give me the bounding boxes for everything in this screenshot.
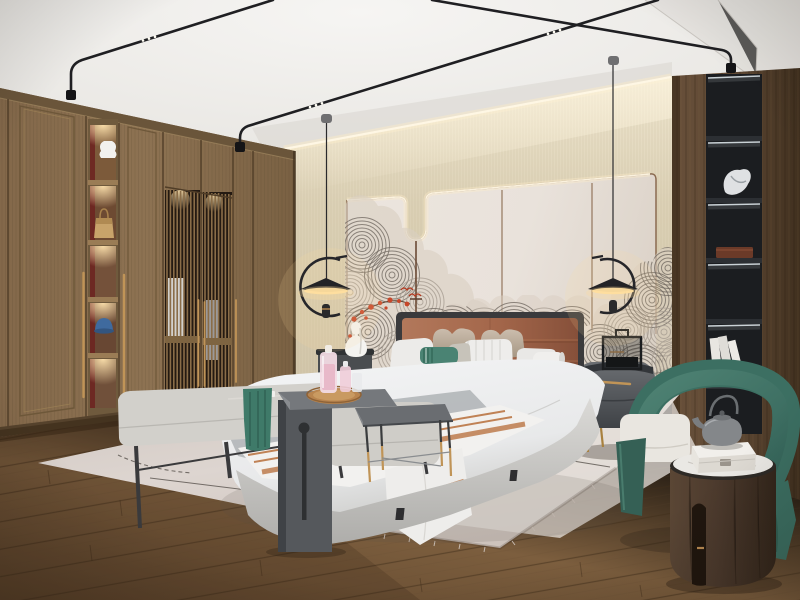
vignette (0, 0, 800, 600)
bedroom-render (0, 0, 800, 600)
